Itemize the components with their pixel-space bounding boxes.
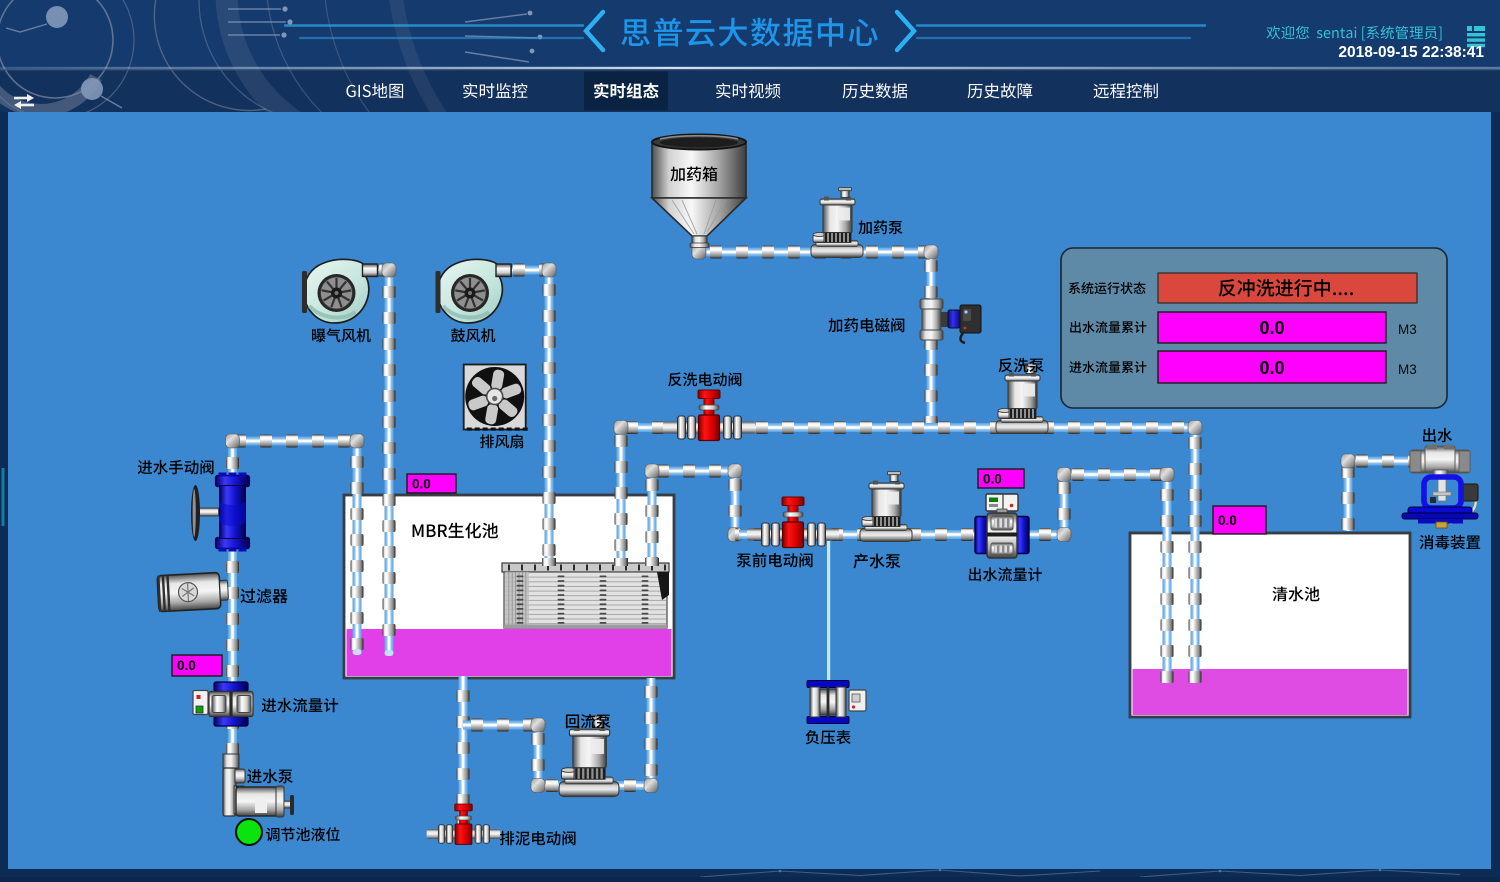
svg-text:0.0: 0.0 [1218, 513, 1237, 528]
svg-text:M3: M3 [1398, 362, 1417, 377]
svg-text:2018-09-15 22:38:41: 2018-09-15 22:38:41 [1338, 44, 1484, 61]
svg-text:0.0: 0.0 [1259, 358, 1284, 378]
svg-text:M3: M3 [1398, 322, 1417, 337]
svg-text:0.0: 0.0 [983, 472, 1002, 487]
svg-text:0.0: 0.0 [1259, 318, 1284, 338]
svg-text:0.0: 0.0 [412, 477, 431, 492]
svg-text:0.0: 0.0 [177, 658, 196, 673]
